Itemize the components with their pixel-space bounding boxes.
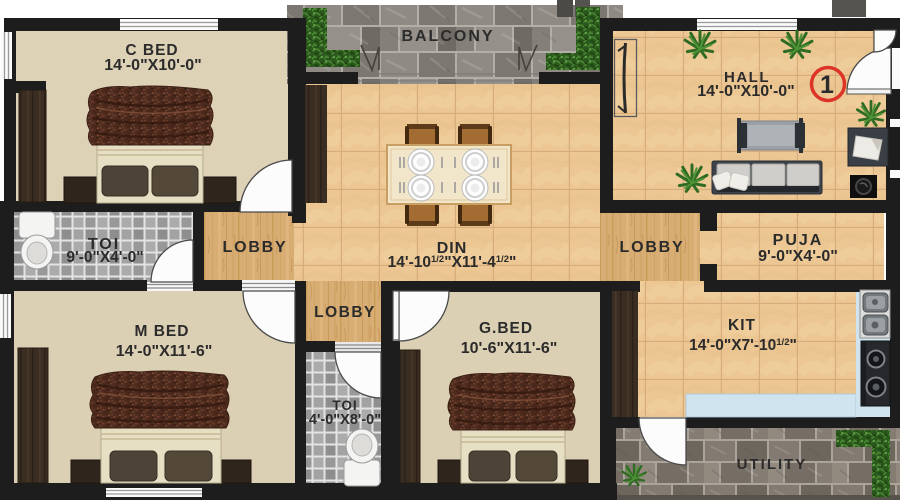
svg-text:KIT: KIT	[728, 317, 756, 334]
svg-text:14'-0"X10'-0": 14'-0"X10'-0"	[697, 83, 795, 100]
svg-text:14'-0"X11'-6": 14'-0"X11'-6"	[116, 343, 213, 360]
svg-text:9'-0"X4'-0": 9'-0"X4'-0"	[66, 249, 143, 266]
svg-text:9'-0"X4'-0": 9'-0"X4'-0"	[758, 248, 838, 265]
svg-text:LOBBY: LOBBY	[620, 239, 685, 256]
svg-text:1: 1	[820, 71, 834, 99]
svg-text:LOBBY: LOBBY	[314, 304, 376, 321]
svg-text:G.BED: G.BED	[479, 320, 533, 337]
svg-text:14'-0"X10'-0": 14'-0"X10'-0"	[104, 57, 202, 74]
svg-text:M BED: M BED	[135, 323, 190, 340]
svg-text:10'-6"X11'-6": 10'-6"X11'-6"	[461, 340, 558, 357]
svg-text:BALCONY: BALCONY	[401, 28, 494, 45]
svg-text:UTILITY: UTILITY	[737, 456, 808, 473]
svg-text:LOBBY: LOBBY	[223, 239, 288, 256]
svg-text:PUJA: PUJA	[773, 232, 824, 249]
svg-text:TOI: TOI	[332, 398, 357, 413]
svg-text:4'-0"X8'-0": 4'-0"X8'-0"	[309, 412, 381, 428]
